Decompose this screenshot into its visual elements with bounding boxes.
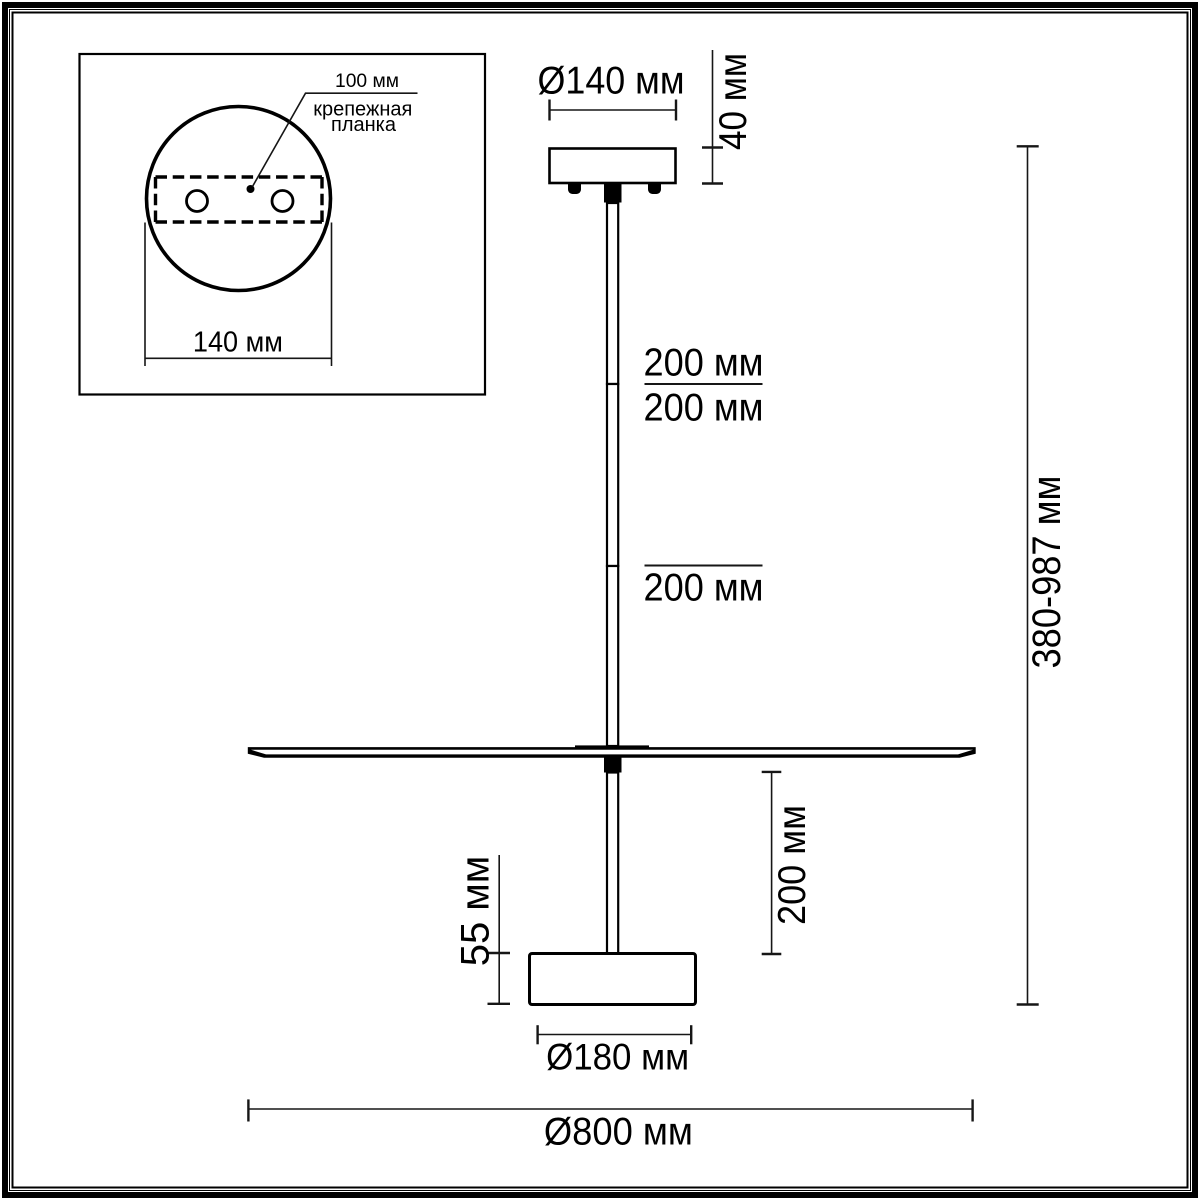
- svg-text:200 мм: 200 мм: [771, 805, 814, 925]
- svg-text:40 мм: 40 мм: [712, 53, 755, 150]
- svg-text:Ø800 мм: Ø800 мм: [544, 1111, 693, 1154]
- svg-text:100 мм: 100 мм: [335, 71, 399, 92]
- svg-text:Ø140 мм: Ø140 мм: [538, 60, 685, 103]
- svg-text:планка: планка: [331, 114, 397, 136]
- svg-text:Ø180 мм: Ø180 мм: [546, 1037, 689, 1078]
- svg-text:55 мм: 55 мм: [453, 856, 497, 967]
- svg-text:140 мм: 140 мм: [193, 327, 283, 359]
- svg-text:200 мм: 200 мм: [644, 387, 764, 430]
- svg-text:200 мм: 200 мм: [644, 342, 764, 385]
- svg-text:200 мм: 200 мм: [644, 567, 764, 610]
- svg-text:380-987 мм: 380-987 мм: [1025, 476, 1069, 669]
